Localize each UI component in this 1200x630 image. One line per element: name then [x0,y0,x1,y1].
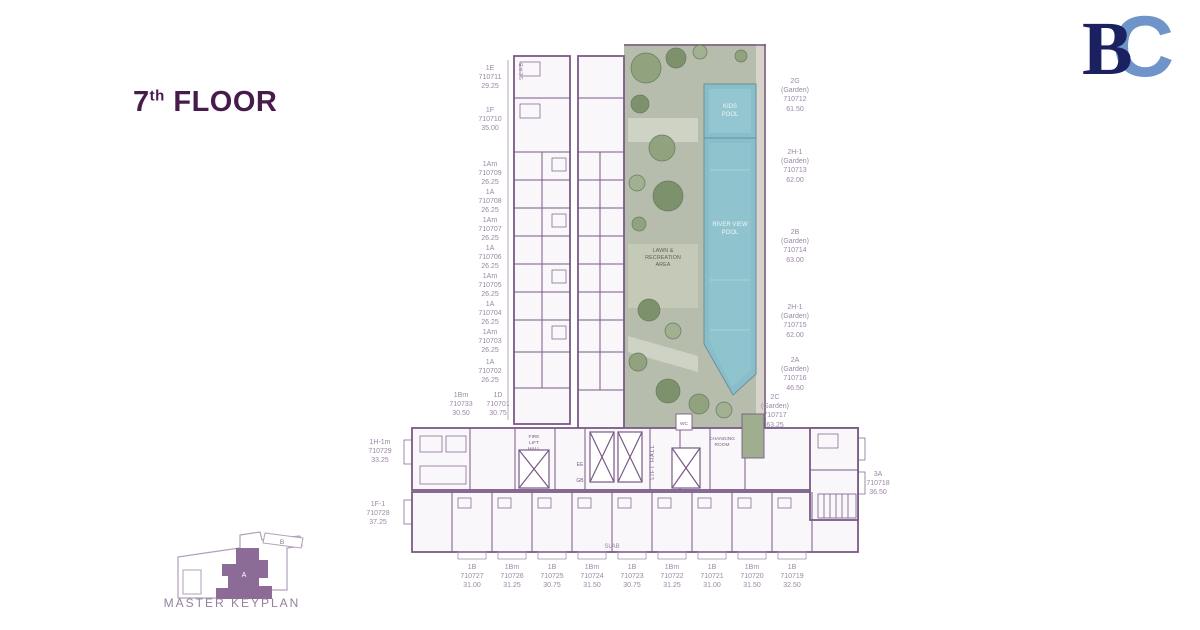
unit-number: 710720 [740,572,763,581]
unit-type: 1Am [478,272,501,281]
unit-type: 1E [479,64,502,73]
unit-number: 710715 [781,321,809,330]
brand-logo: C B [1082,14,1187,94]
unit-number: 710727 [460,572,483,581]
kids-pool-label: KIDS [723,104,737,110]
unit-number: 710703 [478,337,501,346]
unit-label: 1A71070826.25 [478,188,501,216]
svg-text:ROOM: ROOM [715,442,730,448]
unit-area: 36.50 [866,488,889,497]
balcony-ticks [458,552,806,559]
svg-text:WC: WC [680,421,689,427]
unit-label-garden: 2C(Garden)71071763.25 [761,393,789,430]
unit-type: 3A [866,470,889,479]
unit-number: 710717 [761,411,789,420]
unit-type: 1Am [478,160,501,169]
unit-area: 62.00 [781,176,809,185]
keyplan-building-a: A [216,548,272,599]
unit-number: 710719 [780,572,803,581]
unit-type: 1Bm [580,563,603,572]
unit-area: 37.25 [366,518,389,527]
unit-label: 1A71070226.25 [478,358,501,386]
unit-type: 1F [478,106,501,115]
unit-label: 1Am71070926.25 [478,160,501,188]
unit-type: 2G [781,77,809,86]
unit-label: 1B71072530.75 [540,563,563,591]
unit-number: 710707 [478,225,501,234]
unit-area: 61.50 [781,105,809,114]
unit-label: 1B71072330.75 [620,563,643,591]
logo-letter-b: B [1082,6,1133,93]
svg-text:HALL: HALL [528,446,540,452]
unit-area: 30.75 [486,409,509,418]
unit-area: 26.25 [478,178,501,187]
unit-label: 1B71072731.00 [460,563,483,591]
svg-text:LAWN &: LAWN & [653,248,674,254]
unit-number: 710714 [781,246,809,255]
floor-number: 7 [133,86,150,118]
unit-label: 1Bm71072031.50 [740,563,763,591]
unit-label: 1Am71070326.25 [478,328,501,356]
unit-type: 1B [780,563,803,572]
unit-number: 710704 [478,309,501,318]
river-pool-label: POOL [722,230,739,236]
unit-number: 710702 [478,367,501,376]
unit-label: 1Bm71073330.50 [449,391,472,419]
unit-number: 710708 [478,197,501,206]
unit-area: 63.00 [781,256,809,265]
svg-text:LIFT HALL: LIFT HALL [650,444,656,480]
unit-type: 2C [761,393,789,402]
master-keyplan: B A [178,532,303,599]
unit-number: 710721 [700,572,723,581]
unit-number: 710706 [478,253,501,262]
unit-type: 2A [781,356,809,365]
unit-area: 63.25 [761,421,789,430]
svg-text:CHANGING: CHANGING [709,436,735,442]
unit-number: 710718 [866,479,889,488]
svg-text:AREA: AREA [656,262,671,268]
unit-garden-tag: (Garden) [781,237,809,246]
unit-area: 29.25 [479,82,502,91]
unit-garden-tag: (Garden) [781,157,809,166]
unit-garden-tag: (Garden) [781,312,809,321]
unit-garden-tag: (Garden) [761,402,789,411]
unit-label: 1Am71070526.25 [478,272,501,300]
unit-area: 33.25 [368,456,391,465]
master-keyplan-label: MASTER KEYPLAN [164,596,301,610]
unit-type: 1D [486,391,509,400]
unit-number: 710724 [580,572,603,581]
unit-type: 1B [460,563,483,572]
unit-label: 1Bm71072631.25 [500,563,523,591]
unit-area: 62.00 [781,331,809,340]
unit-label: 1B71071932.50 [780,563,803,591]
unit-garden-tag: (Garden) [781,86,809,95]
unit-number: 710723 [620,572,643,581]
page-title: 7th FLOOR [133,86,277,119]
unit-area: 30.75 [540,581,563,590]
unit-number: 710729 [368,447,391,456]
unit-type: 1H-1m [368,438,391,447]
unit-type: 1Am [478,328,501,337]
unit-number: 710710 [478,115,501,124]
unit-label: 1A71070626.25 [478,244,501,272]
unit-label: 1A71070426.25 [478,300,501,328]
unit-label: 1Am71070726.25 [478,216,501,244]
unit-type: 1Bm [500,563,523,572]
unit-type: 2B [781,228,809,237]
unit-area: 26.25 [478,376,501,385]
unit-type: 1B [540,563,563,572]
kids-pool: KIDS POOL [704,84,756,138]
unit-label-garden: 2H-1(Garden)71071562.00 [781,303,809,340]
west-unit-strip [508,56,570,424]
unit-number: 710728 [366,509,389,518]
svg-text:RECREATION: RECREATION [645,255,681,261]
unit-area: 46.50 [781,384,809,393]
unit-area: 31.50 [740,581,763,590]
unit-type: 1B [620,563,643,572]
unit-type: 2H-1 [781,303,809,312]
keyplan-building-b: B [263,533,303,548]
unit-type: 1B [700,563,723,572]
unit-area: 31.00 [460,581,483,590]
unit-number: 710716 [781,374,809,383]
unit-label-garden: 2B(Garden)71071463.00 [781,228,809,265]
unit-number: 710701 [486,400,509,409]
slab-bottom-label: SLAB [604,544,619,550]
unit-number: 710725 [540,572,563,581]
unit-area: 32.50 [780,581,803,590]
unit-label-garden: 2A(Garden)71071646.50 [781,356,809,393]
unit-label-garden: 2H-1(Garden)71071362.00 [781,148,809,185]
unit-area: 26.25 [478,318,501,327]
svg-text:FIRE: FIRE [529,434,540,440]
floorplan-page: KIDS POOL RIVER VIEW POOL LAWN & RECREAT… [0,0,1200,630]
unit-type: 1A [478,358,501,367]
unit-number: 710713 [781,166,809,175]
unit-label: 1B71072131.00 [700,563,723,591]
unit-type: 1Bm [660,563,683,572]
unit-type: 1A [478,300,501,309]
river-pool-label: RIVER VIEW [712,222,748,228]
unit-garden-tag: (Garden) [781,365,809,374]
unit-label: 1H-1m71072933.25 [368,438,391,466]
unit-type: 1A [478,244,501,253]
unit-area: 31.25 [500,581,523,590]
floor-ordinal: th [150,87,165,104]
unit-area: 35.00 [478,124,501,133]
svg-text:A: A [242,572,247,579]
unit-number: 710733 [449,400,472,409]
unit-area: 30.50 [449,409,472,418]
kids-pool-label: POOL [722,112,739,118]
unit-label: 1F-171072837.25 [366,500,389,528]
unit-number: 710709 [478,169,501,178]
unit-number: 710722 [660,572,683,581]
unit-label: 1F71071035.00 [478,106,501,134]
unit-number: 710705 [478,281,501,290]
unit-label: 3A71071836.50 [866,470,889,498]
unit-area: 31.50 [580,581,603,590]
unit-type: 1Am [478,216,501,225]
unit-type: 2H-1 [781,148,809,157]
svg-text:LIFT: LIFT [529,440,539,446]
unit-area: 31.00 [700,581,723,590]
unit-area: 26.25 [478,206,501,215]
unit-label: 1D71070130.75 [486,391,509,419]
unit-type: 1F-1 [366,500,389,509]
unit-number: 710711 [479,73,502,82]
floor-word: FLOOR [173,86,277,118]
unit-area: 26.25 [478,262,501,271]
unit-area: 30.75 [620,581,643,590]
svg-text:GB: GB [576,478,584,484]
unit-number: 710712 [781,95,809,104]
unit-label: 1Bm71072231.25 [660,563,683,591]
river-view-pool: RIVER VIEW POOL [704,138,756,395]
east-unit-strip [578,56,624,430]
unit-type: 1Bm [449,391,472,400]
unit-type: 1A [478,188,501,197]
unit-number: 710726 [500,572,523,581]
unit-area: 26.25 [478,346,501,355]
svg-text:B: B [280,539,284,546]
svg-text:EE: EE [577,462,584,468]
unit-label-garden: 2G(Garden)71071261.50 [781,77,809,114]
unit-area: 31.25 [660,581,683,590]
unit-label: 1Bm71072431.50 [580,563,603,591]
unit-area: 26.25 [478,234,501,243]
unit-type: 1Bm [740,563,763,572]
unit-area: 26.25 [478,290,501,299]
slab-top-label: SLAB [519,62,525,80]
unit-label: 1E71071129.25 [479,64,502,92]
